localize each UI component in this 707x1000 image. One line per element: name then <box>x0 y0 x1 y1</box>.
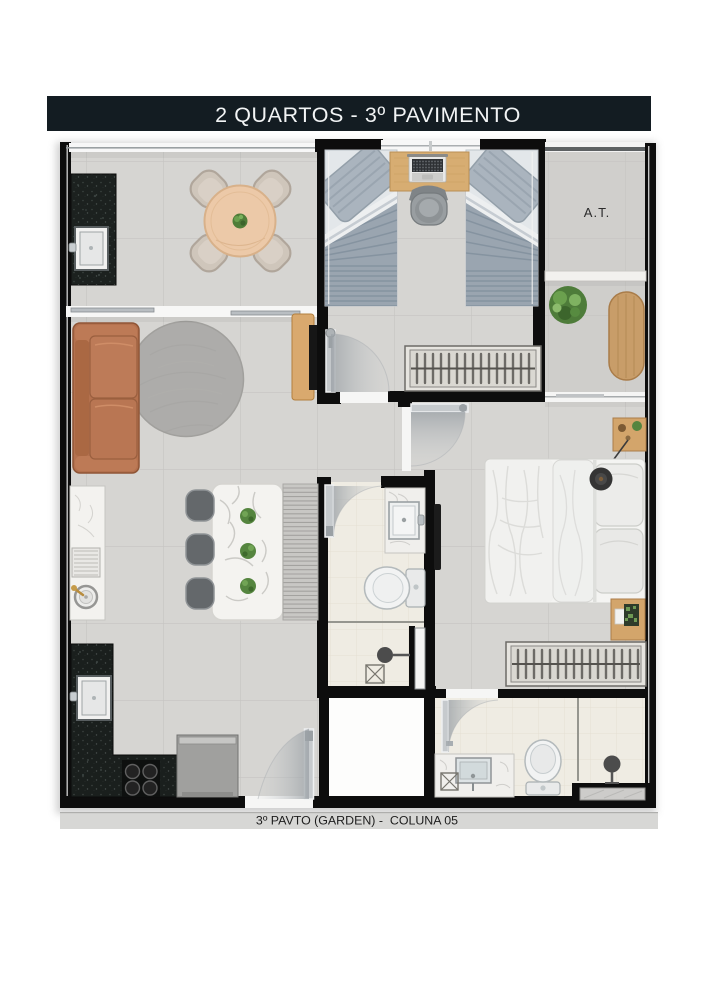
svg-text:3º PAVTO (GARDEN) - COLUNA 05: 3º PAVTO (GARDEN) - COLUNA 05 <box>256 814 458 828</box>
svg-text:A.T.: A.T. <box>584 205 610 220</box>
svg-text:2 QUARTOS - 3º PAVIMENTO: 2 QUARTOS - 3º PAVIMENTO <box>215 103 521 127</box>
